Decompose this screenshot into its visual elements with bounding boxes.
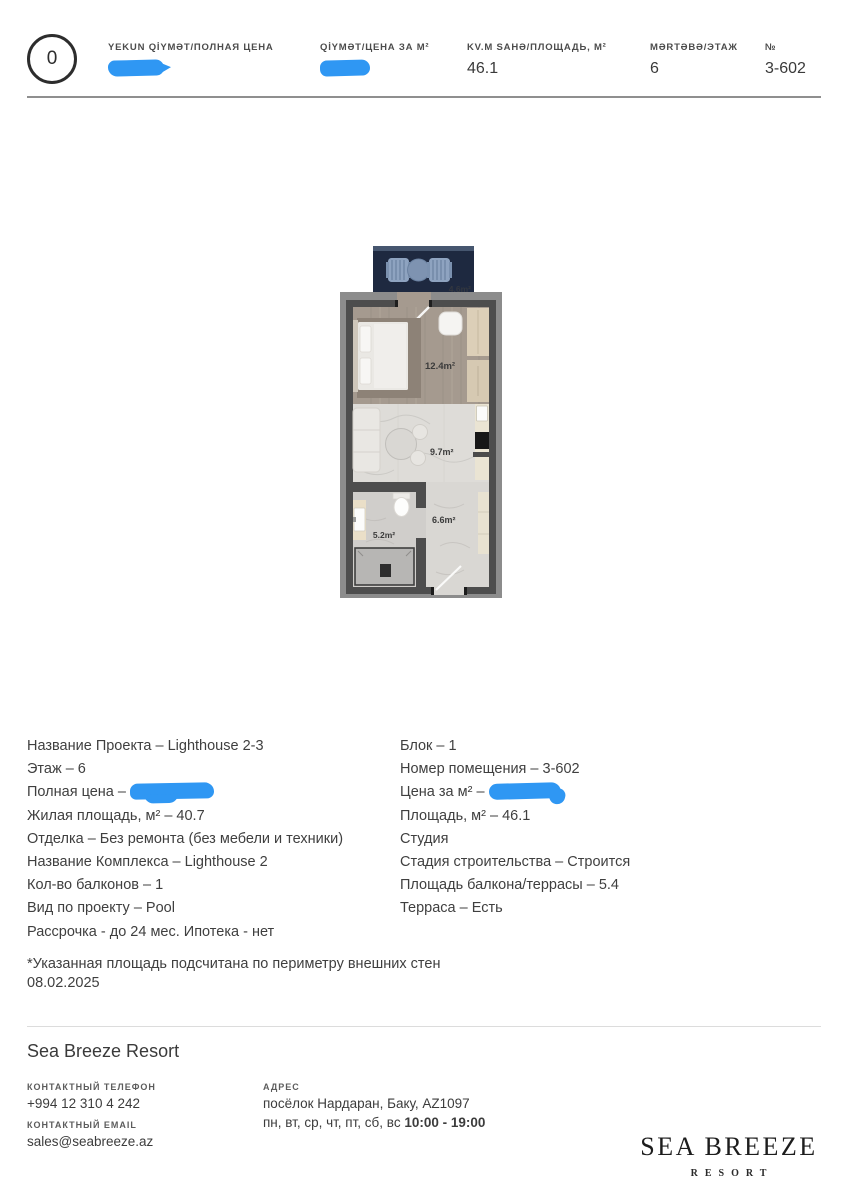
detail-row: Номер помещения – 3-602 (400, 758, 820, 781)
details-right-column: Блок – 1 Номер помещения – 3-602 Цена за… (400, 735, 820, 921)
field-price-per-m2: QİYMƏT/ЦЕНА ЗА М² (320, 42, 429, 78)
balcony-area-label: 4.6m² (449, 284, 471, 294)
address-value: посёлок Нардаран, Баку, AZ1097 (263, 1096, 485, 1111)
kitchen-counter (473, 404, 489, 480)
header-divider (27, 96, 821, 98)
shower (355, 548, 414, 585)
logo-subtitle: RESORT (645, 1168, 819, 1179)
detail-row: Площадь балкона/террасы – 5.4 (400, 874, 820, 897)
email-label: КОНТАКТНЫЙ EMAIL (27, 1120, 156, 1130)
detail-row: Стадия строительства – Строится (400, 851, 820, 874)
contacts: КОНТАКТНЫЙ ТЕЛЕФОН +994 12 310 4 242 КОН… (27, 1082, 821, 1162)
stool (439, 312, 462, 335)
field-total-price-label: YEKUN QİYMƏT/ПОЛНАЯ ЦЕНА (108, 42, 274, 53)
sea-breeze-logo: SEA BREEZE RESORT (639, 1132, 819, 1179)
bed (353, 318, 421, 398)
detail-row: Терраса – Есть (400, 897, 820, 920)
address-label: АДРЕС (263, 1082, 485, 1092)
detail-row: Название Проекта – Lighthouse 2-3 (27, 735, 397, 758)
area-footnote: *Указанная площадь подсчитана по перимет… (27, 955, 440, 992)
field-unit-number: № 3-602 (765, 42, 806, 78)
detail-row: Название Комплекса – Lighthouse 2 (27, 851, 397, 874)
email-value: sales@seabreeze.az (27, 1134, 156, 1149)
bedroom-area-label: 12.4m² (425, 361, 455, 372)
header: 0 YEKUN QİYMƏT/ПОЛНАЯ ЦЕНА QİYMƏT/ЦЕНА З… (27, 33, 821, 91)
redaction-scribble (130, 783, 214, 800)
bathroom-area-label: 5.2m² (373, 530, 395, 540)
detail-row: Рассрочка - до 24 мес. Ипотека - нет (27, 921, 397, 944)
phone-label: КОНТАКТНЫЙ ТЕЛЕФОН (27, 1082, 156, 1092)
unit-marker-value: 0 (47, 48, 58, 70)
detail-row: Студия (400, 828, 820, 851)
hallway-area-label: 6.6m² (432, 515, 456, 525)
field-total-price: YEKUN QİYMƏT/ПОЛНАЯ ЦЕНА (108, 42, 274, 78)
redaction-scribble (488, 782, 560, 800)
detail-row: Площадь, м² – 46.1 (400, 805, 820, 828)
working-hours: пн, вт, ср, чт, пт, сб, вс 10:00 - 19:00 (263, 1115, 485, 1130)
address-column: АДРЕС посёлок Нардаран, Баку, AZ1097 пн,… (263, 1082, 485, 1139)
property-sheet-page: 0 YEKUN QİYMƏT/ПОЛНАЯ ЦЕНА QİYMƏT/ЦЕНА З… (0, 0, 848, 1200)
detail-row: Вид по проекту – Pool (27, 897, 397, 920)
footer: Sea Breeze Resort КОНТАКТНЫЙ ТЕЛЕФОН +99… (27, 1026, 821, 1177)
bathroom-top-wall (353, 482, 416, 492)
field-total-price-value (108, 60, 274, 78)
unit-marker-circle: 0 (27, 34, 77, 84)
detail-row-full-price: Полная цена – (27, 781, 397, 804)
field-price-per-m2-label: QİYMƏT/ЦЕНА ЗА М² (320, 42, 429, 53)
detail-row: Отделка – Без ремонта (без мебели и техн… (27, 828, 397, 851)
living-area-label: 9.7m² (430, 447, 454, 457)
field-unit-number-label: № (765, 42, 806, 53)
hall-wardrobe (478, 492, 489, 554)
field-area-label: KV.M SAHƏ/ПЛОЩАДЬ, М² (467, 42, 607, 53)
field-floor-value: 6 (650, 60, 738, 78)
working-days: пн, вт, ср, чт, пт, сб, вс (263, 1115, 401, 1130)
field-area: KV.M SAHƏ/ПЛОЩАДЬ, М² 46.1 (467, 42, 607, 78)
detail-row: Жилая площадь, м² – 40.7 (27, 805, 397, 828)
vanity-sink (353, 500, 366, 540)
redaction-scribble (108, 59, 164, 76)
floor-plan: 4.6m² 12.4m² 9.7m² 5.2m² 6.6m² (340, 246, 502, 598)
working-time: 10:00 - 19:00 (404, 1115, 485, 1130)
company-name: Sea Breeze Resort (27, 1041, 821, 1062)
footnote-text: *Указанная площадь подсчитана по перимет… (27, 955, 440, 974)
detail-row: Кол-во балконов – 1 (27, 874, 397, 897)
field-price-per-m2-value (320, 60, 429, 78)
wardrobe (467, 308, 489, 402)
balcony-door-opening (397, 292, 431, 307)
phone-value: +994 12 310 4 242 (27, 1096, 156, 1111)
details-left-column: Название Проекта – Lighthouse 2-3 Этаж –… (27, 735, 397, 944)
floor-plan-drawing: 4.6m² 12.4m² 9.7m² 5.2m² 6.6m² (340, 246, 502, 598)
field-area-value: 46.1 (467, 60, 607, 78)
detail-row: Этаж – 6 (27, 758, 397, 781)
field-floor: MƏRTƏBƏ/ЭТАЖ 6 (650, 42, 738, 78)
detail-row-price-per-m2: Цена за м² – (400, 781, 820, 804)
logo-title: SEA BREEZE (639, 1132, 819, 1162)
redaction-scribble (320, 59, 370, 76)
field-floor-label: MƏRTƏBƏ/ЭТАЖ (650, 42, 738, 53)
detail-row: Блок – 1 (400, 735, 820, 758)
sofa (353, 408, 380, 472)
toilet (393, 493, 410, 517)
field-unit-number-value: 3-602 (765, 60, 806, 78)
contact-column: КОНТАКТНЫЙ ТЕЛЕФОН +994 12 310 4 242 КОН… (27, 1082, 156, 1158)
document-date: 08.02.2025 (27, 974, 440, 993)
bathroom-door-opening (416, 508, 426, 538)
